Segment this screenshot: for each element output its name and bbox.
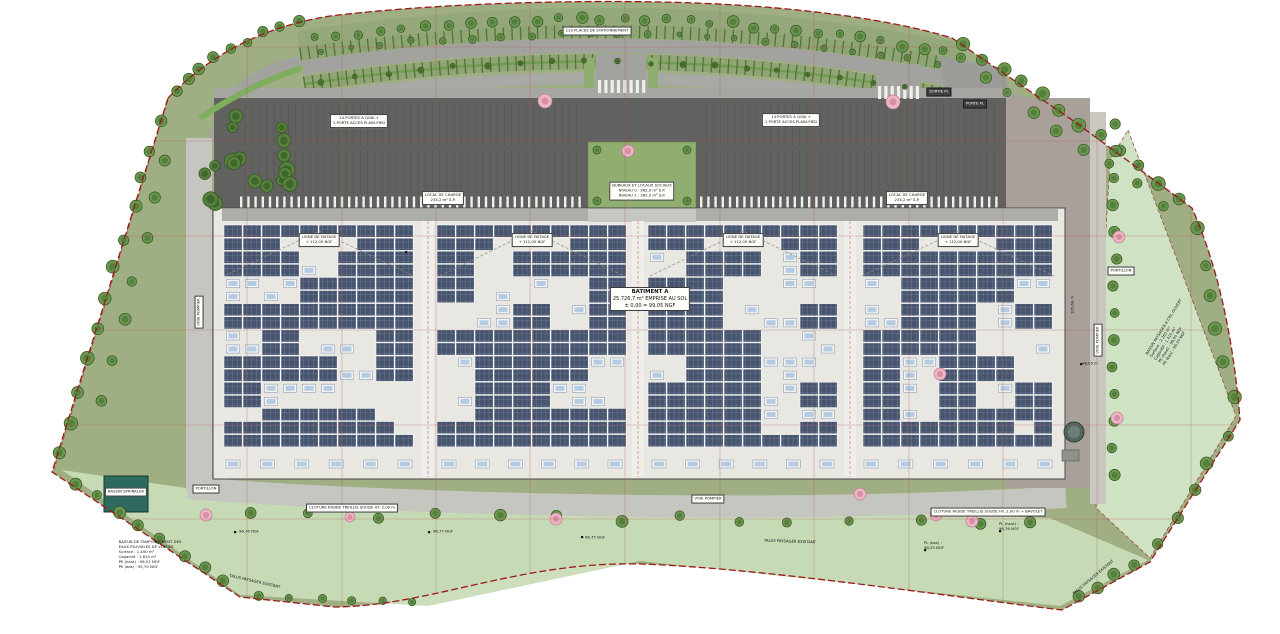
site-plan-drawing bbox=[0, 0, 1280, 634]
pump-house bbox=[1062, 450, 1079, 461]
sprinkler-tank-top bbox=[1068, 426, 1080, 438]
sprinkler-basin bbox=[104, 476, 148, 512]
west-fire-lane bbox=[186, 138, 212, 492]
east-fire-lane bbox=[1090, 112, 1106, 504]
site-plan-stage: 119 PLACES DE STATIONNEMENT 14 PORTES A … bbox=[0, 0, 1280, 634]
office-forecourt-green bbox=[588, 142, 696, 209]
office-block bbox=[588, 209, 696, 222]
